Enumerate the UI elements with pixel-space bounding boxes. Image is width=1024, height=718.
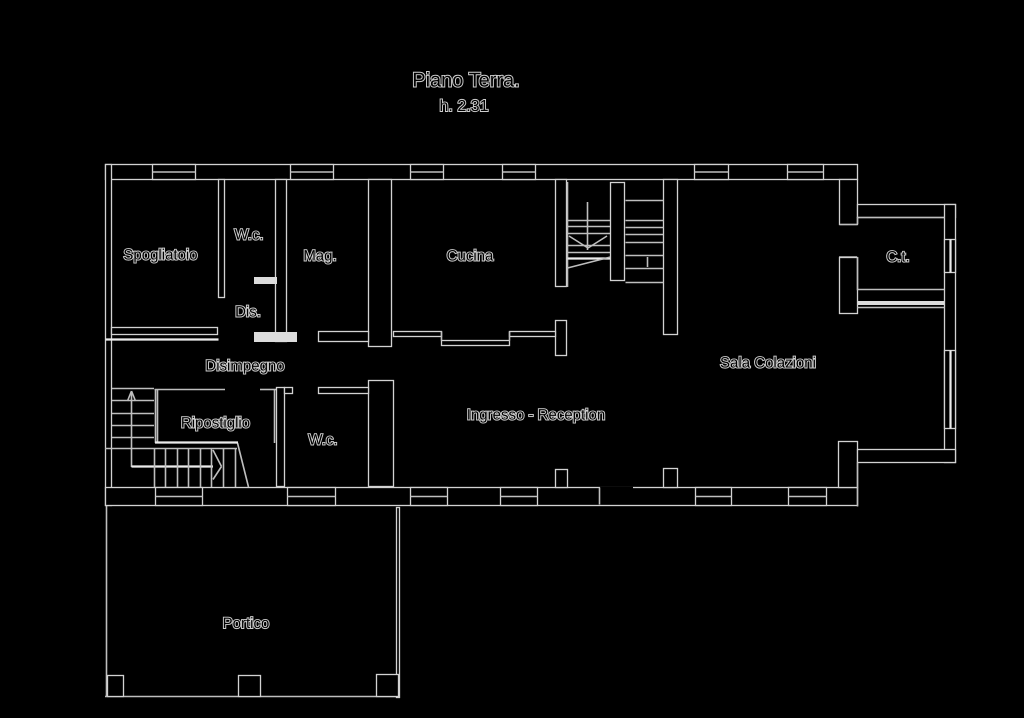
svg-text:h. 2.31: h. 2.31	[440, 98, 489, 115]
svg-text:Portico: Portico	[223, 615, 270, 632]
svg-text:Sala Colazioni: Sala Colazioni	[720, 355, 816, 372]
svg-text:Disimpegno: Disimpegno	[205, 358, 284, 375]
svg-text:W.c.: W.c.	[308, 432, 337, 449]
svg-text:C.t.: C.t.	[886, 249, 909, 266]
svg-text:Spogliatoio: Spogliatoio	[123, 247, 197, 264]
svg-text:Ripostiglio: Ripostiglio	[181, 415, 250, 432]
svg-text:Cucina: Cucina	[447, 248, 494, 265]
svg-text:Dis.: Dis.	[235, 304, 261, 321]
svg-text:W.c.: W.c.	[234, 227, 263, 244]
svg-text:Mag.: Mag.	[303, 248, 336, 265]
svg-text:Ingresso - Reception: Ingresso - Reception	[467, 407, 605, 424]
svg-text:Piano Terra.: Piano Terra.	[412, 70, 519, 92]
